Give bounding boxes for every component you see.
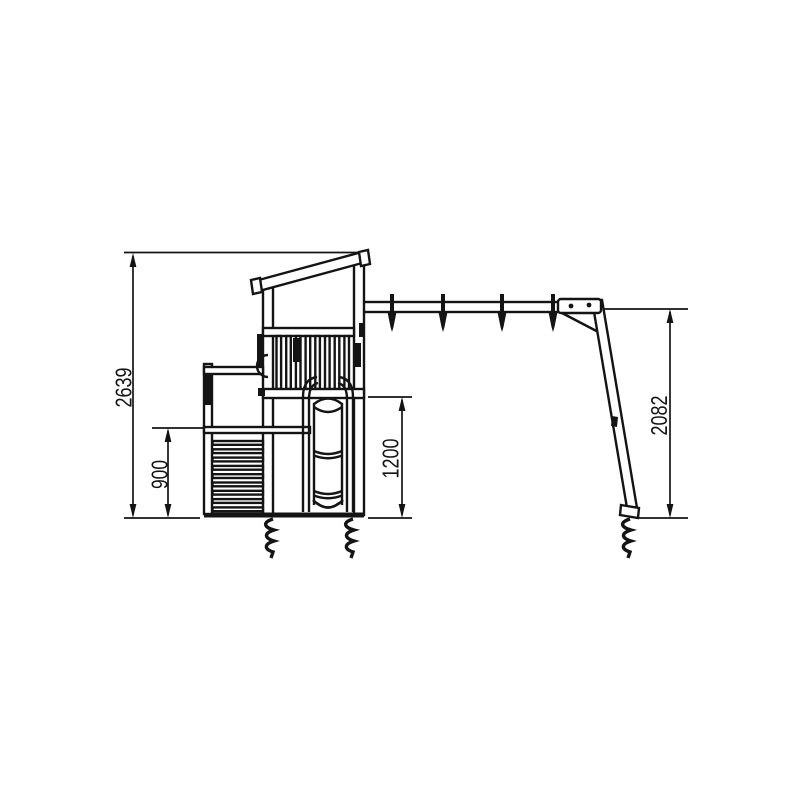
arrowhead-up [667,309,674,323]
arrowhead-up [130,253,137,267]
upper-platform-floor [263,389,364,398]
railing-slats [277,336,350,389]
plank [213,491,264,495]
plank [213,499,264,503]
railing-top-rail [263,328,354,336]
bracket [359,323,365,337]
bracket [258,388,265,396]
swing-hook [498,294,507,332]
hook-pin [390,294,394,312]
dimension-label-overall-height: 2639 [111,368,137,408]
bolt-icon [587,303,592,308]
beam-leg-bracket [558,299,601,313]
hook-icon [439,312,448,332]
arrowhead-down [130,504,137,518]
arrowhead-up [165,428,172,442]
railing-slat [325,336,330,389]
arrowhead-down [667,504,674,518]
support-leg-assembly [558,299,639,518]
arrowhead-up [399,397,406,411]
bracket [354,343,361,367]
roof-plank [255,252,366,291]
tube-segment-line [314,456,342,459]
deck-floor-rail [204,427,310,433]
bracket [203,375,211,405]
dimension-label-lower-platform: 900 [147,460,173,489]
hook-icon [498,312,507,332]
hook-icon [549,312,558,332]
tube-segment-line [314,451,342,454]
ground-base-beam [204,513,364,518]
dimension-label-swing-beam: 2082 [646,396,672,436]
lower-deck [203,355,310,514]
support-leg [592,300,637,508]
railing-slat [286,336,291,389]
dimension-lower-platform: 900 [147,428,207,518]
plank [213,449,264,453]
drawing-canvas: 2639 900 1200 2082 [0,0,800,800]
hook-pin [500,294,504,312]
roof [251,250,370,294]
tube-segment-line [314,491,342,494]
dimension-overall-height: 2639 [111,253,137,518]
tube-top-rim [314,399,342,405]
railing-slat [315,336,320,389]
roof-end-cap-left [251,278,262,294]
leg-foot [620,505,639,518]
bracket [293,338,300,362]
tube-segment-line [314,496,342,499]
dimension-lines: 2639 900 1200 2082 [111,253,689,519]
deck-top-rail [204,367,263,374]
swing-hook [388,294,397,332]
plank [213,458,264,462]
hook-icon [388,312,397,332]
hook-pin [551,294,555,312]
dimension-upper-platform: 1200 [368,397,412,518]
roof-end-cap-right [359,250,370,266]
bolt-icon [569,304,574,309]
tower-post-right [354,258,364,515]
plank [213,466,264,470]
plank [213,474,264,478]
railing-slat [277,336,282,389]
swing-hook [439,294,448,332]
playset-side-elevation-drawing: 2639 900 1200 2082 [0,0,800,800]
ground-anchors [266,519,631,558]
plank-wall [213,441,264,511]
dimension-label-upper-platform: 1200 [378,439,404,479]
plank [213,441,264,445]
tube-top-rim-inner [314,407,342,412]
ground-anchor-screw-icon [346,519,354,558]
leg-bolt-bracket [611,416,618,427]
swing-hook [549,294,558,332]
hook-pin [441,294,445,312]
plank [213,483,264,487]
ground-anchor-screw-icon [266,519,274,558]
plank [213,507,264,511]
railing-slat [335,336,340,389]
arrowhead-down [399,504,406,518]
arrowhead-down [165,504,172,518]
ground-anchor-screw-icon [623,519,631,558]
